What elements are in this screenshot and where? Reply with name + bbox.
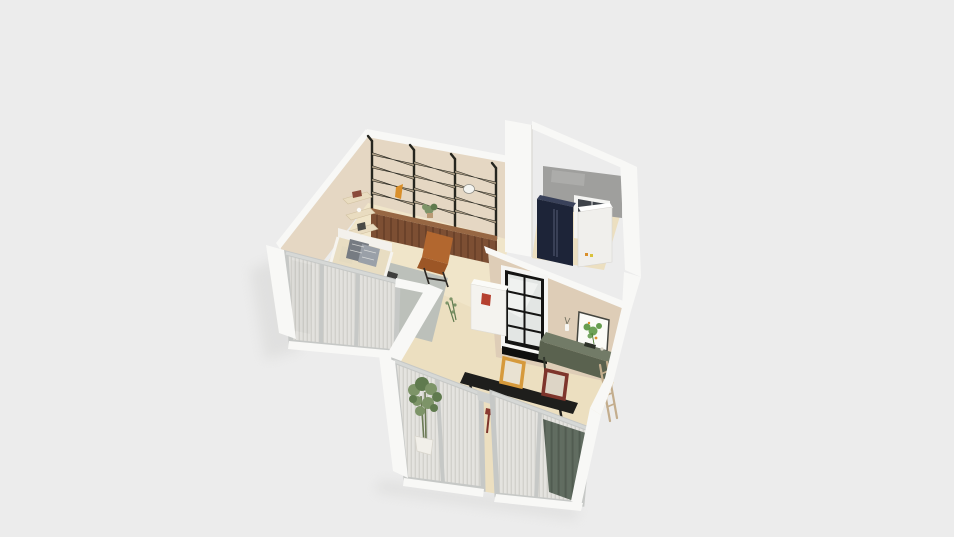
floorplan-stage bbox=[0, 0, 954, 537]
picture-frame-orange[interactable] bbox=[501, 358, 524, 387]
navy-wardrobe-fridge[interactable] bbox=[537, 195, 576, 266]
floorplan-3d-canvas[interactable] bbox=[0, 0, 954, 537]
sideboard-bottle bbox=[600, 347, 603, 350]
white-counter[interactable] bbox=[471, 279, 509, 336]
appliance-light bbox=[585, 253, 588, 256]
appliance-light bbox=[590, 254, 593, 257]
sideboard-vase bbox=[565, 324, 569, 331]
window-mullion bbox=[321, 262, 322, 346]
red-kettle[interactable] bbox=[481, 293, 491, 306]
shelf-decor-bird[interactable] bbox=[464, 185, 475, 194]
picture-frame-red[interactable] bbox=[543, 370, 567, 399]
closet-west-wall[interactable] bbox=[505, 120, 532, 257]
white-appliance[interactable] bbox=[578, 203, 613, 267]
window-mullion bbox=[356, 271, 358, 349]
shelf-trinket bbox=[357, 208, 361, 212]
